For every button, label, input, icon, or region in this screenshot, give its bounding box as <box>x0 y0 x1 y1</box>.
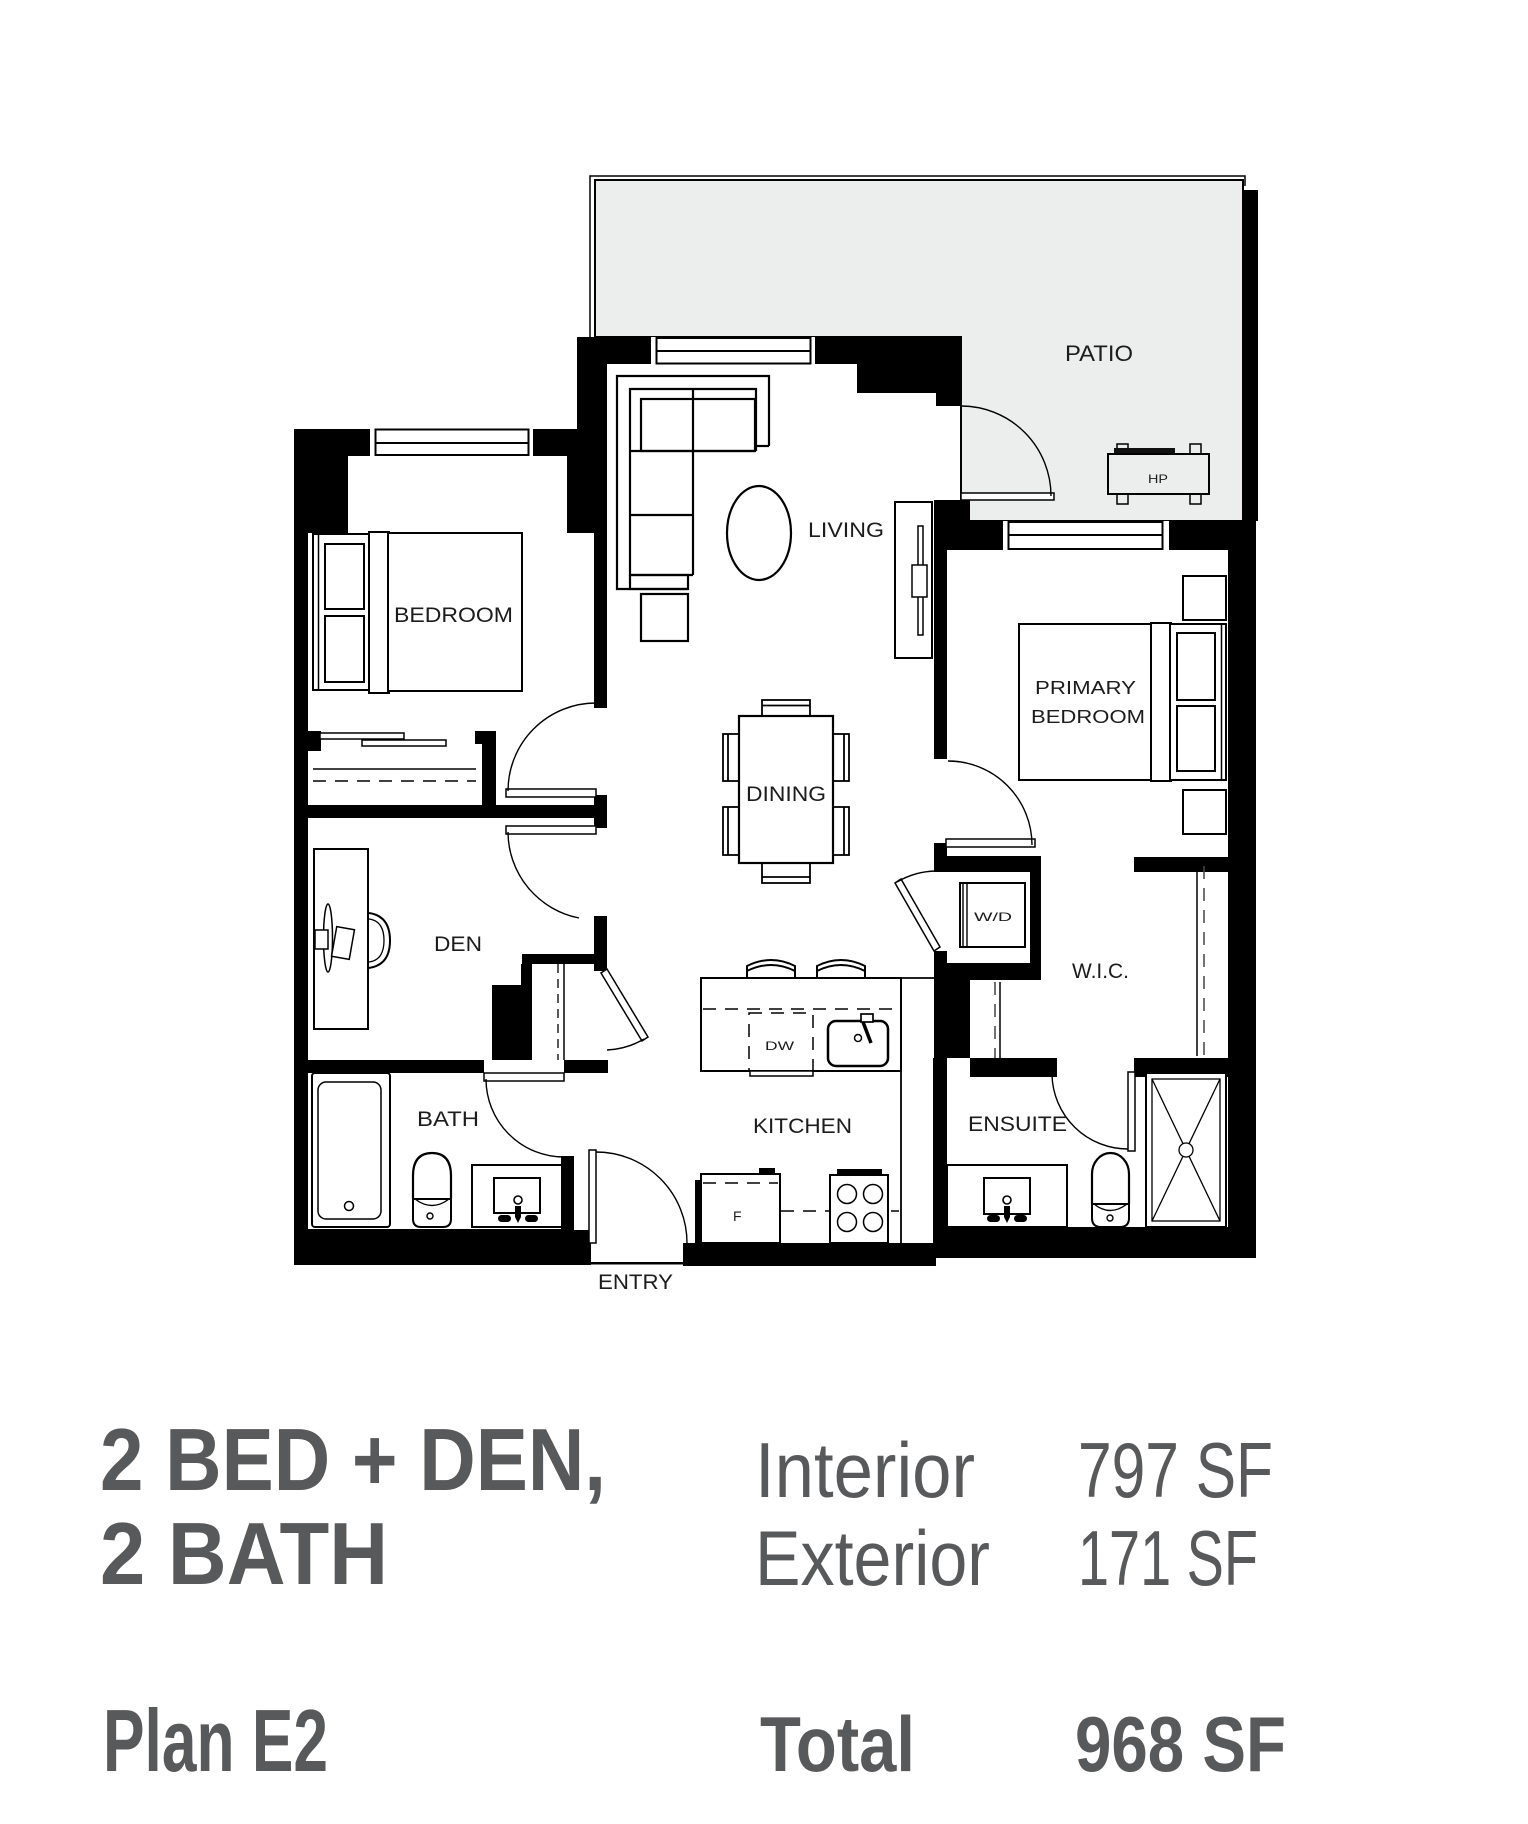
svg-text:Plan E2: Plan E2 <box>103 1691 328 1790</box>
svg-text:HP: HP <box>1148 472 1168 486</box>
svg-text:2 BATH: 2 BATH <box>100 1504 388 1603</box>
svg-text:2 BED + DEN,: 2 BED + DEN, <box>100 1410 606 1509</box>
svg-text:BATH: BATH <box>417 1108 479 1131</box>
svg-text:Exterior: Exterior <box>755 1514 990 1602</box>
svg-text:968 SF: 968 SF <box>1075 1700 1286 1788</box>
svg-text:DINING: DINING <box>746 783 826 806</box>
svg-text:DEN: DEN <box>434 933 482 956</box>
svg-text:ENTRY: ENTRY <box>598 1271 673 1294</box>
svg-text:W.I.C.: W.I.C. <box>1072 960 1129 983</box>
svg-text:W/D: W/D <box>974 910 1013 924</box>
svg-text:KITCHEN: KITCHEN <box>753 1115 852 1138</box>
svg-text:BEDROOM: BEDROOM <box>1031 706 1145 727</box>
svg-text:PRIMARY: PRIMARY <box>1035 677 1136 698</box>
svg-text:DW: DW <box>765 1039 795 1053</box>
svg-text:ENSUITE: ENSUITE <box>968 1113 1067 1136</box>
svg-text:Interior: Interior <box>755 1426 975 1514</box>
svg-text:797 SF: 797 SF <box>1078 1426 1273 1514</box>
svg-text:BEDROOM: BEDROOM <box>394 604 513 627</box>
svg-text:171 SF: 171 SF <box>1078 1514 1258 1602</box>
svg-text:Total: Total <box>760 1700 915 1788</box>
svg-text:PATIO: PATIO <box>1065 341 1133 366</box>
svg-text:LIVING: LIVING <box>808 519 884 542</box>
svg-text:F: F <box>733 1208 742 1224</box>
